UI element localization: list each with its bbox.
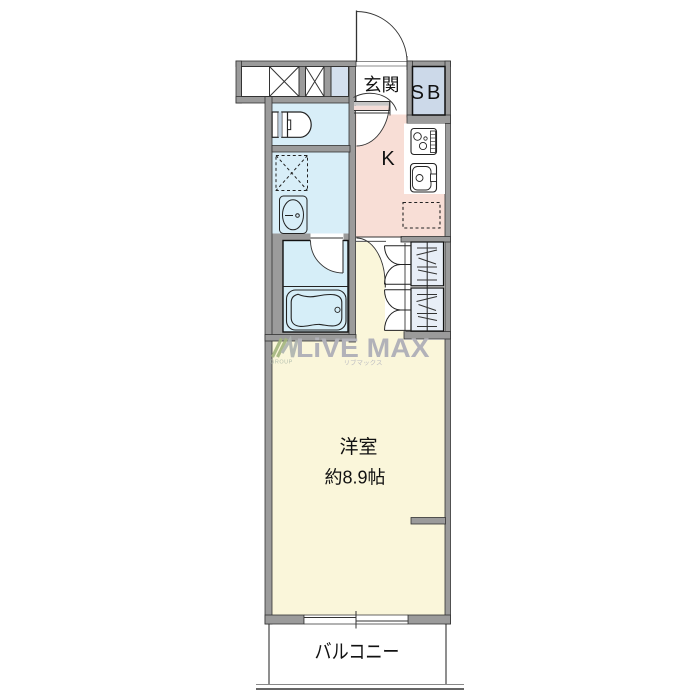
svg-text:バルコニー: バルコニー	[315, 642, 400, 664]
svg-text:約8.9帖: 約8.9帖	[324, 468, 385, 488]
svg-text:SB: SB	[411, 82, 444, 104]
svg-text:リブマックス: リブマックス	[344, 359, 383, 367]
svg-text:GROUP: GROUP	[270, 360, 293, 366]
svg-text:洋室: 洋室	[339, 436, 377, 458]
svg-text:玄関: 玄関	[364, 75, 400, 95]
svg-text:K: K	[381, 148, 395, 170]
svg-text:LiVE MAX: LiVE MAX	[296, 333, 430, 363]
